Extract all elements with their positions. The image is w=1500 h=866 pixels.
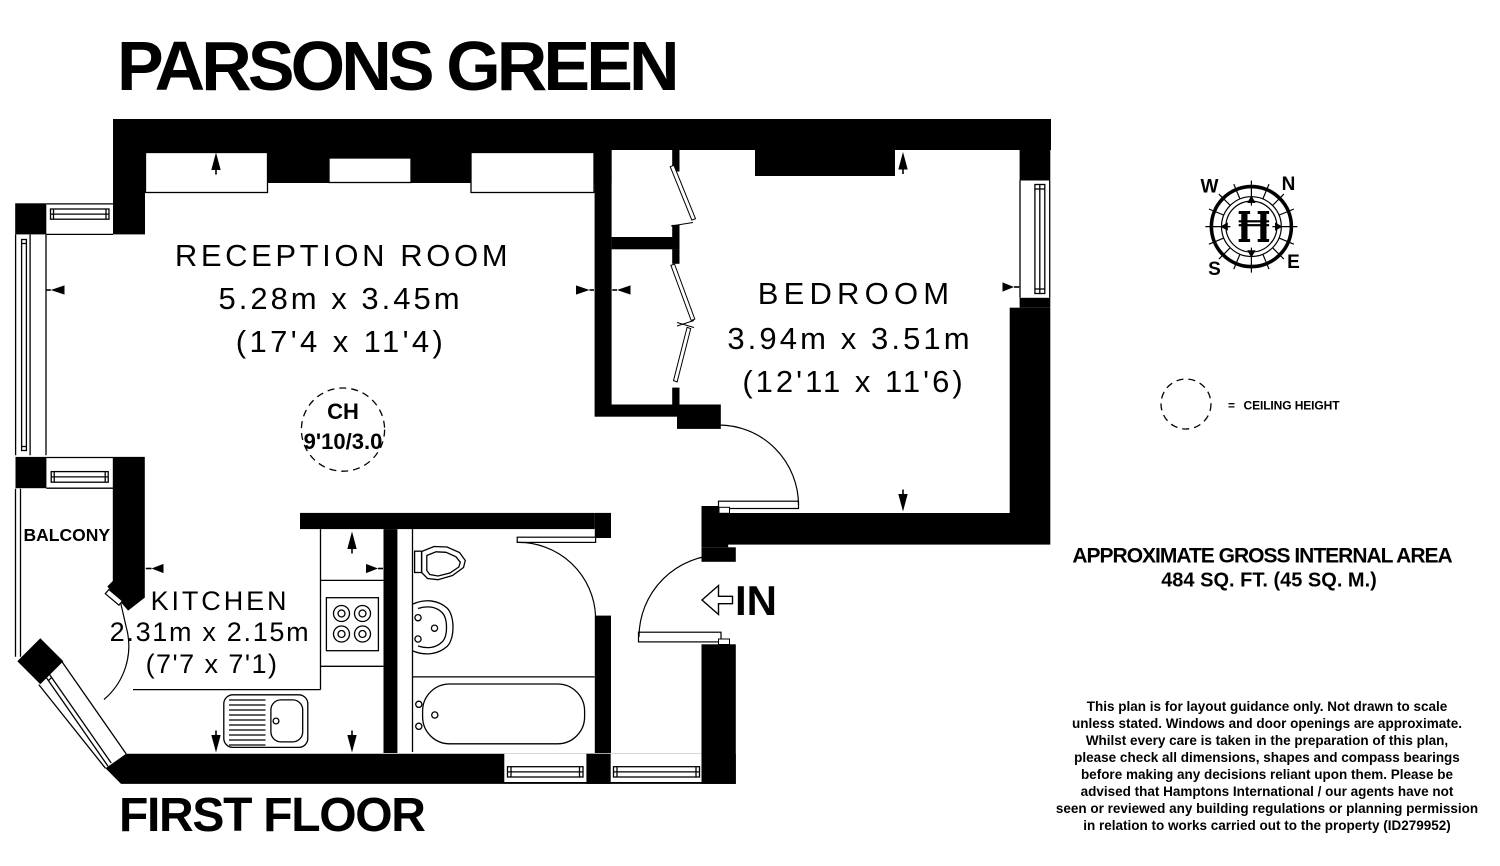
svg-text:PARSONS GREEN: PARSONS GREEN (117, 27, 676, 105)
svg-text:Whilst every care is taken in: Whilst every care is taken in the prepar… (1086, 733, 1448, 748)
svg-text:BEDROOM: BEDROOM (758, 276, 955, 311)
svg-text:CH: CH (327, 399, 359, 424)
svg-text:5.28m x 3.45m: 5.28m x 3.45m (218, 281, 462, 316)
svg-text:(12'11 x 11'6): (12'11 x 11'6) (742, 364, 965, 399)
svg-text:This plan is for layout guidan: This plan is for layout guidance only. N… (1087, 699, 1448, 714)
svg-text:484 SQ. FT. (45 SQ. M.): 484 SQ. FT. (45 SQ. M.) (1161, 570, 1377, 592)
svg-text:BALCONY: BALCONY (24, 525, 111, 545)
svg-text:=: = (1228, 399, 1235, 413)
svg-text:S: S (1208, 259, 1221, 280)
svg-text:2.31m x 2.15m: 2.31m x 2.15m (110, 617, 311, 647)
svg-text:RECEPTION ROOM: RECEPTION ROOM (175, 238, 511, 273)
svg-text:9'10/3.0: 9'10/3.0 (304, 429, 383, 454)
svg-text:3.94m x 3.51m: 3.94m x 3.51m (727, 321, 972, 356)
svg-text:FIRST FLOOR: FIRST FLOOR (119, 789, 425, 842)
svg-text:(17'4 x 11'4): (17'4 x 11'4) (236, 324, 447, 359)
svg-text:(7'7 x 7'1): (7'7 x 7'1) (146, 649, 279, 679)
svg-text:before making any decisions re: before making any decisions reliant upon… (1081, 767, 1454, 782)
svg-text:IN: IN (735, 577, 777, 624)
svg-text:W: W (1201, 177, 1219, 198)
svg-text:APPROXIMATE GROSS INTERNAL ARE: APPROXIMATE GROSS INTERNAL AREA (1072, 545, 1452, 568)
svg-text:advised that Hamptons Internat: advised that Hamptons International / ou… (1081, 784, 1454, 799)
svg-text:N: N (1282, 174, 1296, 195)
svg-text:CEILING HEIGHT: CEILING HEIGHT (1244, 399, 1341, 413)
svg-text:seen or reviewed any building: seen or reviewed any building regulation… (1056, 801, 1478, 816)
svg-text:KITCHEN: KITCHEN (151, 586, 290, 616)
svg-text:please check all dimensions, s: please check all dimensions, shapes and … (1074, 750, 1460, 765)
svg-text:E: E (1287, 252, 1300, 273)
svg-text:unless stated. Windows and doo: unless stated. Windows and door openings… (1072, 716, 1462, 731)
svg-text:in relation to works carried o: in relation to works carried out to the … (1083, 818, 1451, 833)
